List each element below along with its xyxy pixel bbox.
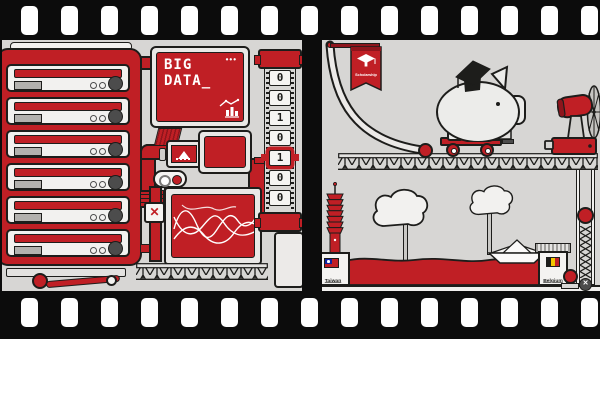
sprocket-hole bbox=[341, 6, 358, 35]
sprocket-hole bbox=[141, 298, 158, 327]
fan-cannon bbox=[544, 82, 600, 156]
dolly-wheel bbox=[32, 273, 48, 289]
chain-icon bbox=[580, 226, 591, 278]
belgium-label: Belgium bbox=[543, 277, 563, 283]
film-frame-servers: BIG DATA_ ••• bbox=[2, 40, 302, 291]
server-unit bbox=[6, 130, 130, 158]
elevator-rail bbox=[591, 169, 595, 285]
illustration-canvas: BIG DATA_ ••• bbox=[0, 0, 600, 410]
secondary-screen bbox=[204, 136, 246, 168]
indicator-pill bbox=[153, 170, 187, 188]
big-data-screen: BIG DATA_ ••• bbox=[156, 52, 244, 122]
sprocket-hole bbox=[341, 298, 358, 327]
power-led bbox=[108, 142, 123, 157]
server-unit bbox=[6, 64, 130, 92]
collection-bin bbox=[274, 232, 302, 288]
sprocket-hole bbox=[381, 6, 398, 35]
menu-dots-icon: ••• bbox=[226, 55, 237, 64]
elevator-ball bbox=[577, 207, 594, 224]
sprocket-hole bbox=[21, 298, 38, 327]
widget-tab bbox=[159, 148, 166, 161]
sprocket-hole bbox=[541, 298, 558, 327]
binary-cell: 0 bbox=[269, 130, 291, 146]
taiwan-label: Taiwan bbox=[325, 277, 341, 283]
truss-platform bbox=[136, 263, 268, 280]
server-cabinet bbox=[2, 48, 142, 266]
indicator-light-off bbox=[159, 175, 171, 187]
pig-eye bbox=[496, 102, 500, 106]
sprocket-hole bbox=[501, 6, 518, 35]
server-unit bbox=[6, 97, 130, 125]
big-data-line1: BIG bbox=[164, 57, 211, 73]
upload-screen bbox=[171, 145, 197, 163]
taipei-101-tower bbox=[323, 182, 347, 253]
sprocket-hole bbox=[581, 6, 598, 35]
power-led bbox=[108, 241, 123, 256]
big-data-monitor: BIG DATA_ ••• bbox=[150, 46, 250, 128]
piggy-bank-graduate bbox=[434, 58, 526, 142]
sprocket-hole bbox=[21, 6, 38, 35]
server-unit bbox=[6, 229, 130, 257]
upload-widget bbox=[166, 140, 202, 168]
film-frame-scholarship: Taiwan Belgium Scholarship bbox=[322, 40, 600, 291]
power-led bbox=[108, 175, 123, 190]
taiwan-flag-icon bbox=[324, 258, 339, 268]
sprocket-hole bbox=[261, 6, 278, 35]
sprocket-hole bbox=[421, 6, 438, 35]
sprocket-hole bbox=[221, 298, 238, 327]
belgium-flag-icon bbox=[546, 257, 560, 267]
binary-cell: 0 bbox=[269, 70, 291, 86]
power-led bbox=[108, 76, 123, 91]
binary-cell: 0 bbox=[269, 190, 291, 206]
sprocket-hole bbox=[381, 298, 398, 327]
cloud bbox=[370, 186, 430, 228]
dolly-end-wheel bbox=[106, 275, 117, 286]
delivered-ball bbox=[563, 269, 578, 284]
waveform-screen bbox=[171, 194, 255, 258]
upload-dots bbox=[176, 158, 192, 160]
sprocket-hole bbox=[301, 298, 318, 327]
binary-cell: 0 bbox=[269, 90, 291, 106]
sprocket-hole bbox=[461, 298, 478, 327]
chart-icon bbox=[218, 98, 240, 118]
tape-roller-top bbox=[258, 49, 302, 69]
sprocket-hole bbox=[181, 6, 198, 35]
sprocket-hole bbox=[541, 6, 558, 35]
sprocket-hole bbox=[221, 6, 238, 35]
chain-gear-icon: ✕ bbox=[579, 278, 592, 291]
binary-cell-highlighted: 1 bbox=[269, 150, 291, 166]
cannon-stand bbox=[568, 116, 584, 138]
power-led bbox=[108, 208, 123, 223]
taiwan-pillar: Taiwan bbox=[322, 252, 350, 286]
sprocket-hole bbox=[581, 298, 598, 327]
big-data-line2: DATA_ bbox=[164, 73, 211, 89]
scholarship-label: Scholarship bbox=[355, 73, 377, 77]
server-unit bbox=[6, 196, 130, 224]
sprocket-hole bbox=[61, 298, 78, 327]
cart-wheel bbox=[446, 143, 460, 157]
sprocket-hole bbox=[141, 6, 158, 35]
binary-cell: 1 bbox=[269, 110, 291, 126]
sprocket-hole bbox=[501, 298, 518, 327]
tape-roller-bottom bbox=[258, 212, 302, 232]
cart-wheel bbox=[480, 143, 494, 157]
sprocket-hole bbox=[61, 6, 78, 35]
sprocket-hole bbox=[101, 6, 118, 35]
indicator-light-on bbox=[172, 175, 182, 185]
sprocket-hole bbox=[261, 298, 278, 327]
wheel-hub bbox=[485, 148, 491, 154]
waveform-monitor bbox=[164, 187, 262, 265]
sprocket-hole bbox=[181, 298, 198, 327]
big-data-title: BIG DATA_ bbox=[164, 57, 211, 89]
secondary-monitor bbox=[198, 130, 252, 174]
sprocket-hole bbox=[421, 298, 438, 327]
waveform-icon bbox=[172, 195, 255, 258]
sprocket-hole bbox=[101, 298, 118, 327]
close-button: ✕ bbox=[144, 202, 165, 223]
pig-body bbox=[437, 82, 519, 142]
pipe-down bbox=[149, 186, 162, 262]
scholarship-banner: Scholarship bbox=[350, 46, 382, 92]
rolling-ball bbox=[418, 143, 433, 158]
cloud bbox=[463, 183, 519, 216]
sprocket-hole bbox=[461, 6, 478, 35]
cannon-barrel bbox=[557, 94, 593, 119]
wheel-hub bbox=[451, 148, 457, 154]
power-led bbox=[108, 109, 123, 124]
sprocket-hole bbox=[301, 6, 318, 35]
base-handle bbox=[545, 141, 553, 149]
binary-cell: 0 bbox=[269, 170, 291, 186]
server-unit bbox=[6, 163, 130, 191]
